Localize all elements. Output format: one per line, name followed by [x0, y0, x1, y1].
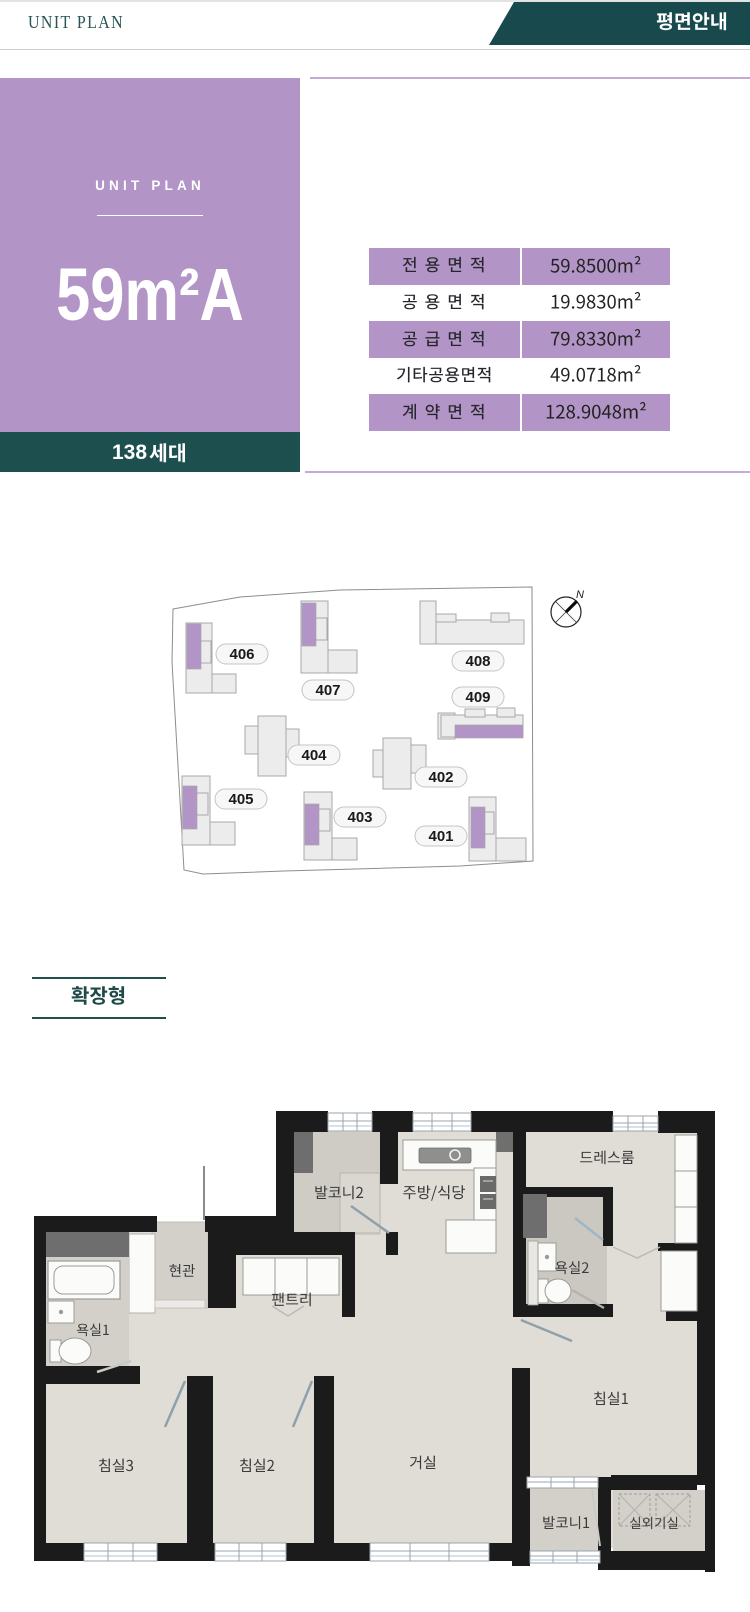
svg-text:406: 406: [229, 646, 254, 663]
svg-text:404: 404: [301, 747, 327, 764]
svg-text:409: 409: [465, 689, 490, 706]
svg-text:N: N: [576, 589, 584, 601]
svg-text:407: 407: [315, 682, 340, 699]
svg-text:408: 408: [465, 653, 490, 670]
svg-text:405: 405: [228, 791, 253, 808]
svg-text:402: 402: [428, 769, 453, 786]
svg-text:403: 403: [347, 809, 372, 826]
svg-text:401: 401: [428, 828, 453, 845]
